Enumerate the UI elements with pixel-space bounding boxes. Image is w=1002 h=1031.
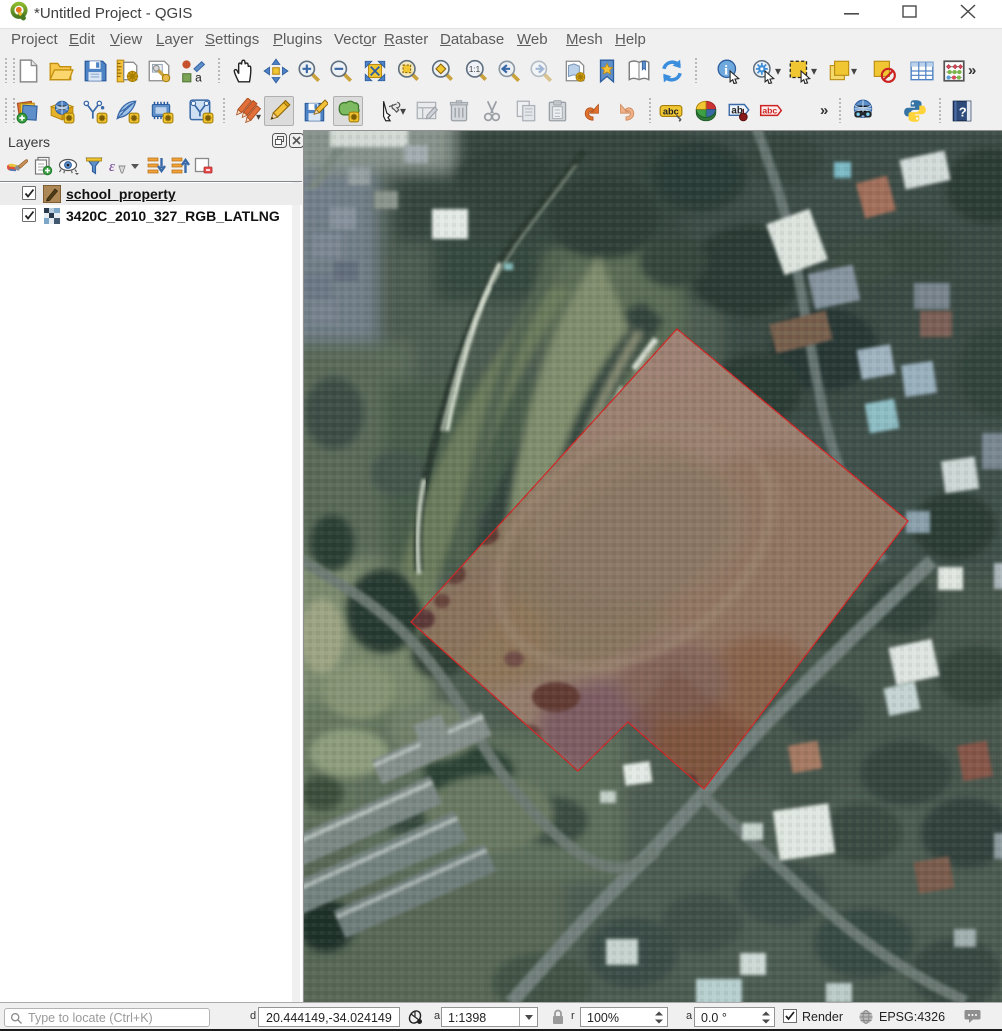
svg-text:abc: abc	[663, 106, 679, 116]
svg-text:i: i	[724, 62, 728, 78]
svg-text:abc: abc	[762, 106, 777, 116]
svg-text:?: ?	[959, 104, 967, 119]
svg-text:ε: ε	[109, 159, 115, 175]
svg-text:1:1: 1:1	[469, 65, 481, 74]
svg-text:a: a	[195, 70, 202, 84]
